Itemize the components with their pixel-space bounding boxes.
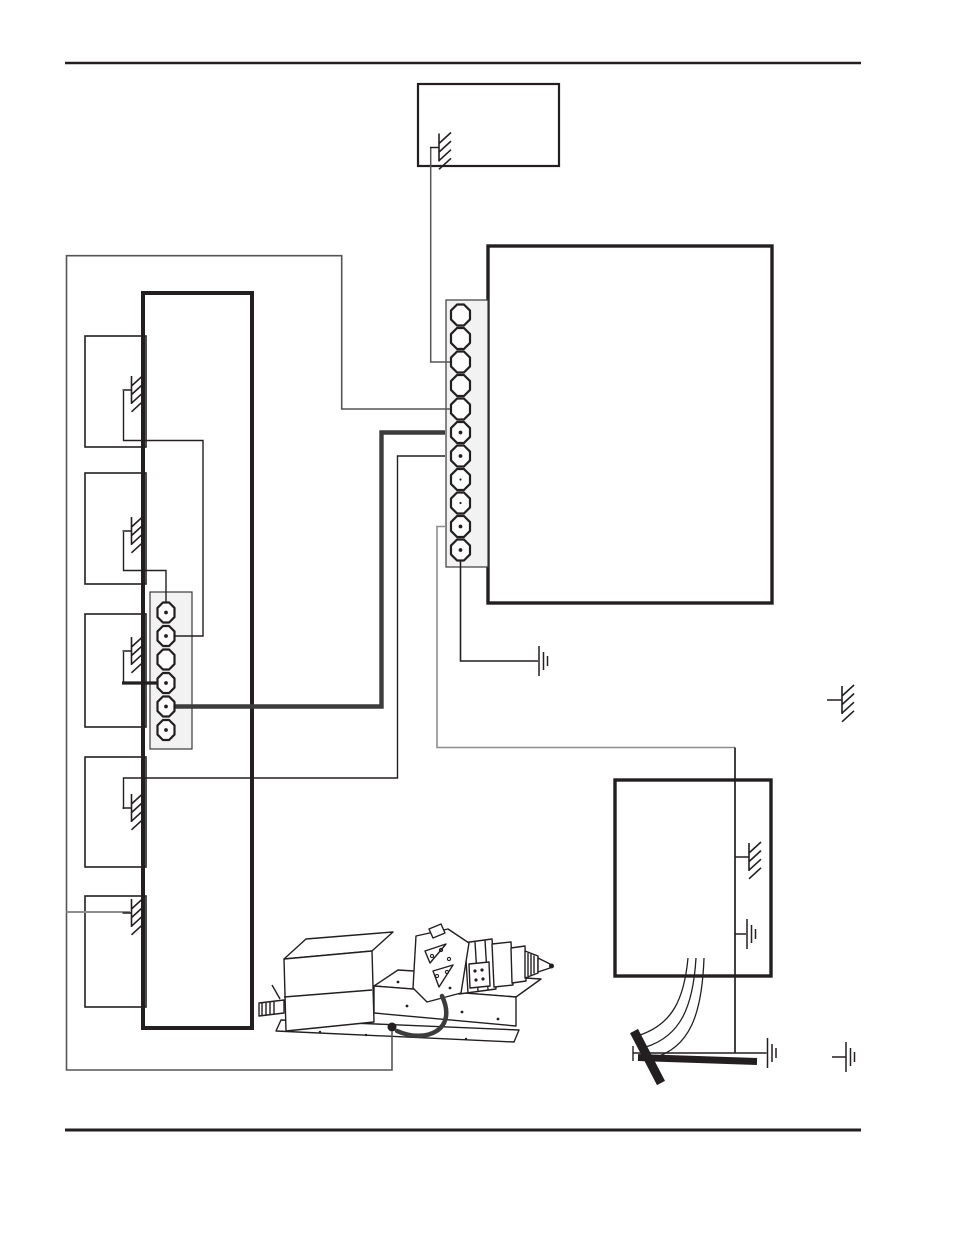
left-box-2 xyxy=(85,473,146,584)
gun-block xyxy=(469,962,490,988)
feeder-screw-knob xyxy=(272,985,280,999)
ground-wire-curve-3 xyxy=(653,958,704,1058)
earth-ground-rightbox xyxy=(747,919,756,949)
earth-ground-bottom-right xyxy=(832,1042,855,1072)
left-connector-strip-terminal-1-dot xyxy=(164,611,168,615)
right-terminal-strip-terminal-9-dot xyxy=(459,502,461,504)
right-terminal-strip-terminal-5 xyxy=(451,399,470,420)
gun-block-pin-2 xyxy=(480,968,483,971)
gun-block-pin-3 xyxy=(474,978,477,981)
chassis-ground-standalone-right xyxy=(827,685,854,722)
manual-page xyxy=(0,0,954,1235)
right-terminal-strip-terminal-2 xyxy=(451,328,470,349)
gun-collar xyxy=(511,946,526,983)
chassis-ground-rightbox xyxy=(740,842,761,879)
gun-ring xyxy=(492,942,513,987)
chassis-ground-topbox xyxy=(430,133,451,170)
right-terminal-strip-terminal-1 xyxy=(451,305,470,326)
feeder-screw-block xyxy=(259,1000,284,1016)
gun-block-pin-1 xyxy=(473,969,476,972)
chassis-ground-box3 xyxy=(123,636,144,673)
left-box-3 xyxy=(85,614,146,727)
gun-block-pin-4 xyxy=(481,977,484,980)
gun-tip xyxy=(538,958,550,972)
left-connector-strip-terminal-3 xyxy=(158,650,175,670)
right-large-box xyxy=(488,246,772,603)
ground-wire-curve-2 xyxy=(646,958,696,1047)
wire-connector5-to-terminal6 xyxy=(166,433,445,707)
deck-hole-4 xyxy=(461,1011,464,1014)
chassis-ground-box1 xyxy=(123,375,144,412)
grounding-diagram xyxy=(0,0,954,1235)
deck-hole-2 xyxy=(406,1005,409,1008)
base-hole-4 xyxy=(465,1038,467,1040)
deck-hole-1 xyxy=(397,981,400,984)
deck-hole-5 xyxy=(497,1018,500,1021)
left-connector-strip-terminal-4-dot xyxy=(164,681,168,685)
wire-terminal11-to-ground xyxy=(461,560,539,661)
base-hole-2 xyxy=(365,1034,367,1036)
left-box-1 xyxy=(85,336,146,447)
base-hole-1 xyxy=(319,1031,321,1033)
right-terminal-strip-terminal-10-dot xyxy=(459,525,463,529)
right-terminal-strip-terminal-4 xyxy=(451,375,470,396)
gun-tip-ball xyxy=(549,964,554,969)
bracket-plate xyxy=(413,929,469,1002)
left-box-4 xyxy=(85,757,146,867)
right-terminal-strip-terminal-11-dot xyxy=(459,548,463,552)
left-connector-strip-terminal-6-dot xyxy=(164,728,168,732)
right-terminal-strip-terminal-3 xyxy=(451,352,470,373)
right-terminal-strip-terminal-7-dot xyxy=(459,454,463,458)
right-terminal-strip-terminal-6-dot xyxy=(459,431,463,435)
ground-rod-bar xyxy=(638,1058,757,1062)
feeder-cable-ground-dot xyxy=(388,1023,397,1032)
right-terminal-strip-terminal-8-dot xyxy=(459,478,461,480)
deck-hole-3 xyxy=(449,987,452,990)
earth-ground-rod xyxy=(768,1038,777,1068)
left-connector-strip-terminal-2-dot xyxy=(164,634,168,638)
chassis-ground-box5 xyxy=(123,898,144,935)
earth-ground-terminal11 xyxy=(539,646,548,676)
chassis-ground-box2 xyxy=(123,516,144,553)
left-connector-strip-terminal-5-dot xyxy=(164,705,168,709)
ground-wire-curve-1 xyxy=(640,958,688,1035)
chassis-ground-box4 xyxy=(123,793,144,830)
